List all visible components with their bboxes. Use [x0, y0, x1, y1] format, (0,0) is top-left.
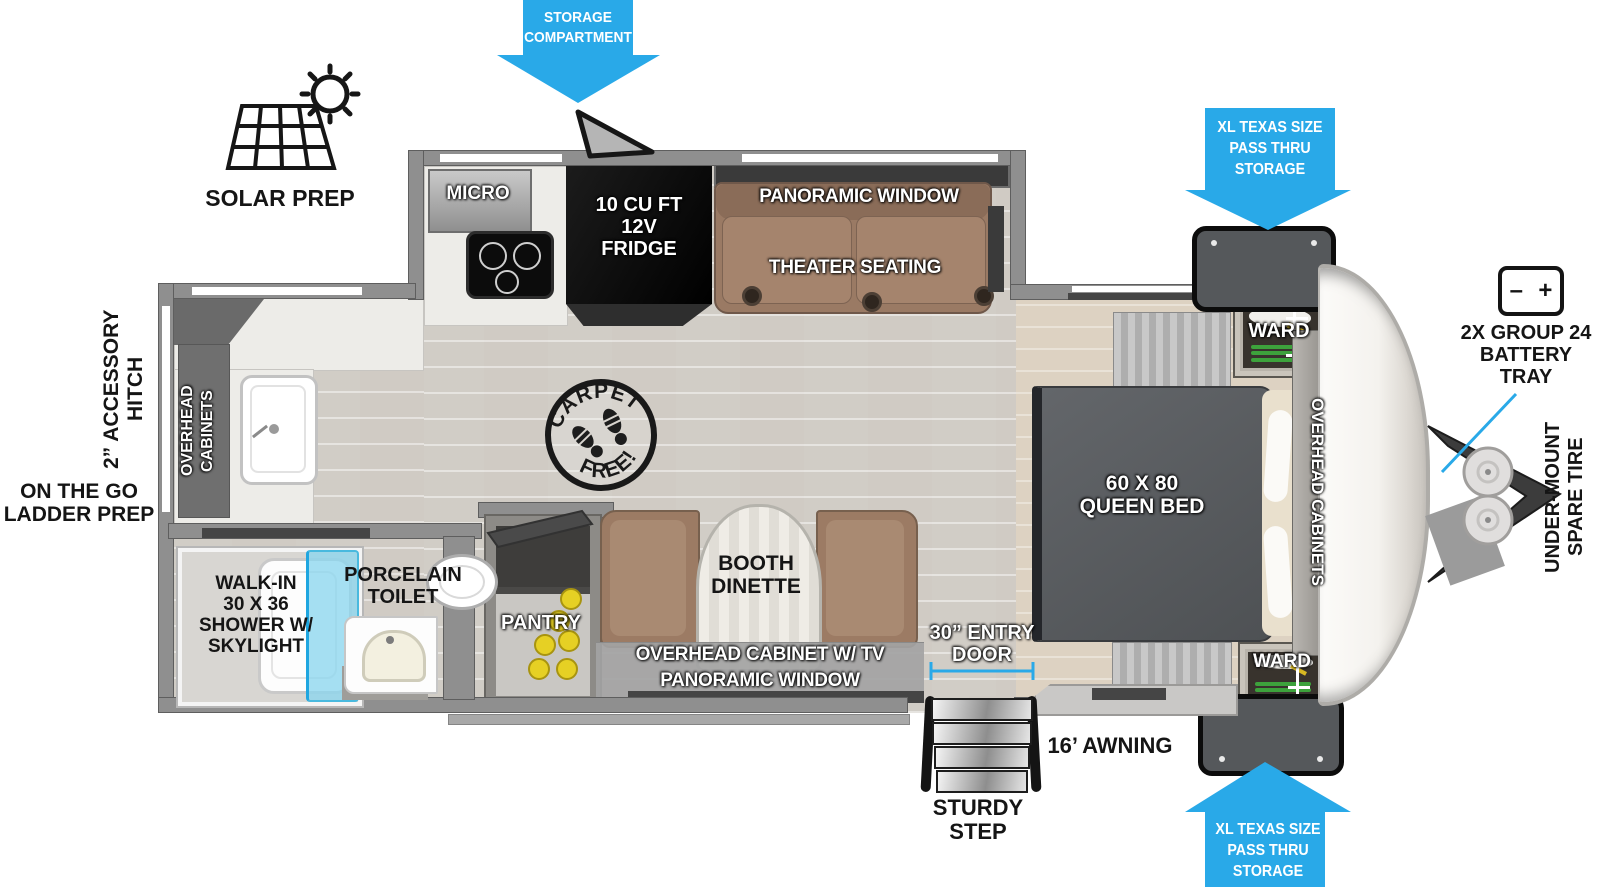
- queen-bed-label: 60 X 80 QUEEN BED: [1042, 472, 1242, 518]
- overhead-cabinet-tv-label: OVERHEAD CABINET W/ TV: [598, 645, 922, 666]
- bench-cushion: [826, 520, 904, 636]
- battery-minus: –: [1510, 277, 1523, 305]
- cooktop: [466, 231, 554, 299]
- burner-icon: [513, 242, 541, 270]
- panoramic-window-top-label: PANORAMIC WINDOW: [714, 187, 1004, 208]
- storage-compartment-flag: [570, 106, 660, 162]
- dinette-bench-left: [600, 510, 700, 648]
- wall-slide-step: [1010, 150, 1026, 300]
- faucet-icon: [269, 424, 279, 434]
- entry-door-bracket: [926, 660, 1038, 682]
- window: [1072, 286, 1194, 292]
- battery-tray-label: 2X GROUP 24 BATTERY TRAY: [1444, 322, 1600, 388]
- panoramic-window-bottom-label: PANORAMIC WINDOW: [598, 671, 922, 692]
- shower-label: WALK-IN 30 X 36 SHOWER W/ SKYLIGHT: [180, 574, 332, 658]
- ladder-prep-label: ON THE GO LADDER PREP: [0, 480, 158, 526]
- entry-step-plate: [1092, 688, 1166, 700]
- dinette-bench-right: [816, 510, 918, 648]
- screw-icon: [1211, 240, 1217, 246]
- accessory-hitch-label: 2” ACCESSORY HITCH: [100, 294, 156, 484]
- entry-steps: [926, 696, 1036, 794]
- faucet-icon: [386, 636, 394, 644]
- cupholder-icon: [742, 286, 762, 306]
- pillow: [1263, 525, 1293, 618]
- chassis-rail: [448, 714, 910, 725]
- theater-seating-label: THEATER SEATING: [730, 258, 980, 279]
- window: [440, 154, 562, 162]
- can-icon: [528, 658, 550, 680]
- fridge-label: 10 CU FT 12V FRIDGE: [568, 194, 710, 260]
- pantry-interior: [496, 526, 590, 696]
- headboard: [1262, 390, 1296, 636]
- cupholder-icon: [862, 292, 882, 312]
- bed-platform-top: [1113, 312, 1231, 390]
- bench-cushion: [610, 520, 686, 636]
- awning-label: 16’ AWNING: [1030, 734, 1190, 758]
- window: [192, 287, 362, 295]
- window: [162, 306, 170, 512]
- can-icon: [556, 658, 578, 680]
- window-dark: [202, 528, 370, 538]
- ward-bottom-label: WARD: [1238, 652, 1326, 673]
- bedroom-overhead-cabinets-label: OVERHEAD CABINETS: [1292, 334, 1326, 650]
- micro-label: MICRO: [428, 184, 528, 205]
- battery-plus: +: [1538, 277, 1552, 305]
- window: [742, 154, 998, 162]
- window-dark: [1068, 293, 1194, 300]
- storage-compartment-callout: STORAGE COMPARTMENT: [523, 8, 633, 49]
- bathroom-door: [484, 505, 600, 551]
- floorplan-diagram: STORAGE COMPARTMENT XL TEXAS SIZE PASS T…: [0, 0, 1600, 887]
- pass-thru-top-callout: XL TEXAS SIZE PASS THRU STORAGE: [1208, 118, 1331, 181]
- rear-sink: [240, 375, 318, 485]
- battery-leader-line: [1436, 388, 1524, 478]
- burner-icon: [479, 242, 507, 270]
- pillow: [1263, 409, 1293, 502]
- screw-icon: [1311, 240, 1317, 246]
- wall-rear-join: [408, 150, 424, 300]
- solar-prep-label: SOLAR PREP: [194, 186, 366, 211]
- solar-panel-icon: [212, 60, 372, 186]
- vanity: [344, 616, 438, 694]
- can-icon: [560, 588, 582, 610]
- pass-thru-bottom-callout: XL TEXAS SIZE PASS THRU STORAGE: [1208, 820, 1328, 883]
- burner-icon: [495, 270, 519, 294]
- sturdy-step-label: STURDY STEP: [918, 796, 1038, 844]
- porcelain-toilet-label: PORCELAIN TOILET: [336, 564, 470, 608]
- booth-dinette-label: BOOTH DINETTE: [698, 552, 814, 598]
- pass-thru-compartment-top: [1192, 226, 1336, 312]
- can-icon: [534, 634, 556, 656]
- battery-icon: – +: [1498, 266, 1564, 316]
- spare-tire-label: UNDER-MOUNT SPARE TIRE: [1542, 402, 1588, 592]
- rear-overhead-cabinets-label: OVERHEAD CABINETS: [178, 352, 228, 510]
- vanity-sink: [362, 630, 426, 682]
- pantry-label: PANTRY: [486, 612, 596, 634]
- spare-tire-icon: [1464, 496, 1512, 544]
- slide-side-window: [988, 206, 1004, 292]
